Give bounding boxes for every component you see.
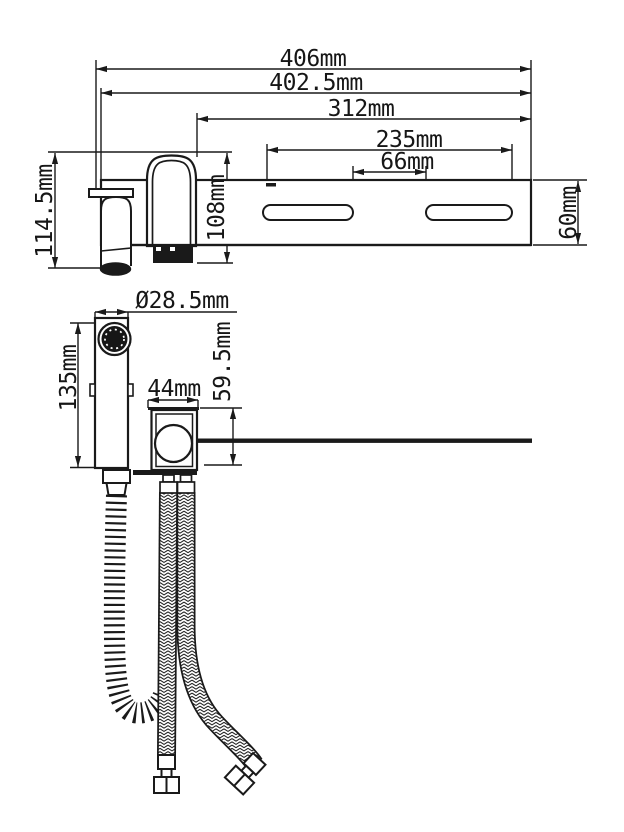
dim-label-406: 406mm [280,46,347,72]
sprayer-nut [103,470,130,483]
sprayer-holder-plate [89,189,133,197]
sprayer-body-top-view [101,197,131,270]
dim-label-108: 108mm [204,175,230,242]
dim-label-59-5: 59.5mm [210,322,236,402]
sprayer-clip-right [128,384,133,396]
shelf-notch [266,183,276,187]
spout-line [197,439,532,443]
shelf-slot-right [426,205,512,220]
dim-label-402-5: 402.5mm [269,70,362,96]
dim-label-135: 135mm [56,345,82,412]
dim-label-44: 44mm [147,376,200,402]
shelf-slot-left [263,205,353,220]
valve-cartridge-circle [155,425,192,462]
braided-hose-straight [167,492,169,756]
dim-label-60: 60mm [556,186,582,239]
dim-label-312: 312mm [328,96,395,122]
sprayer-clip-left [90,384,95,396]
mixer-base-notch [156,247,161,251]
sprayer-outlet [101,263,131,275]
dim-label-114-5: 114.5mm [32,164,58,257]
dim-label-66: 66mm [380,149,433,175]
dim-label-28-5: Ø28.5mm [135,288,228,314]
faucet-dimension-drawing: 406mm 402.5mm 312mm 235mm 66mm 114.5mm 1… [0,0,624,832]
drawing-canvas: 406mm 402.5mm 312mm 235mm 66mm 114.5mm 1… [0,0,624,832]
mixer-base-notch [170,247,175,251]
sprayer-nut-taper [107,483,127,495]
